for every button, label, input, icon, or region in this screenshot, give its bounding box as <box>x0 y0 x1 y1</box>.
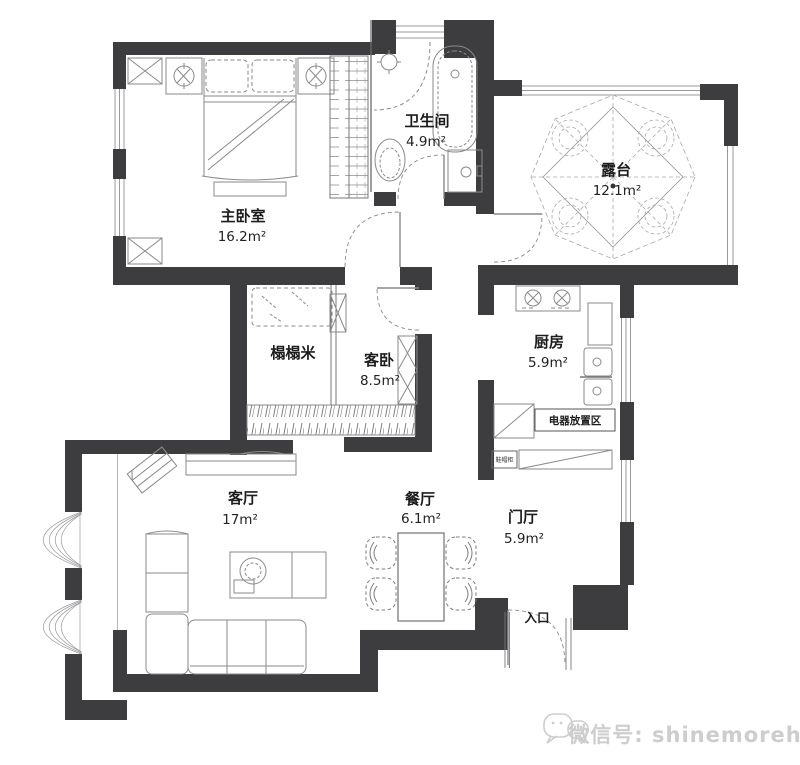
wall-segment <box>475 598 508 650</box>
dining-room-label: 餐厅 <box>405 490 435 508</box>
toilet <box>375 139 405 181</box>
dining-table <box>398 533 444 621</box>
wall-segment <box>724 98 738 146</box>
ceiling-lamp-icon <box>381 54 397 70</box>
watermark-text: 微信号: shinemorehn <box>567 723 800 747</box>
bathtub-inner <box>438 51 472 147</box>
terrace-railing <box>522 86 700 95</box>
patio-chair <box>638 198 674 234</box>
wall-segment <box>65 654 82 702</box>
wall-segment <box>230 285 247 455</box>
burner-cross <box>556 292 568 304</box>
bed-bench <box>214 182 286 196</box>
entrance-hall-label: 门厅 <box>508 508 538 526</box>
wall-segment <box>113 149 126 179</box>
wall-segment <box>65 454 82 512</box>
corner-cabinet-cross <box>128 58 162 84</box>
wall-segment <box>65 700 127 720</box>
wall-segment <box>444 192 492 206</box>
patio-chair <box>552 120 588 156</box>
living-room <box>127 447 326 674</box>
patio-chair <box>559 205 581 227</box>
bed-diagonal <box>208 99 294 170</box>
wall-segment <box>478 285 494 315</box>
wall-segment <box>372 20 396 54</box>
wall-segment <box>700 84 738 100</box>
terrace-label: 露台 <box>601 161 631 179</box>
shoe-cabinet-label: 鞋帽柜 <box>495 456 513 464</box>
wall-segment <box>360 630 378 692</box>
living-room-label: 客厅 <box>227 489 258 507</box>
wall-segment <box>444 20 494 58</box>
wall-segment <box>113 42 375 55</box>
table-plant-inner <box>245 563 261 579</box>
wall-segment <box>378 630 478 650</box>
wall-segment <box>344 437 426 452</box>
coffee-table <box>230 552 292 598</box>
wechat-eye <box>560 722 563 725</box>
window <box>115 89 124 149</box>
bed-blanket-edge <box>202 176 298 180</box>
wall-segment <box>478 265 738 285</box>
living-room-area: 17m² <box>222 512 258 528</box>
sofa-left <box>146 531 188 612</box>
kitchen-sink <box>584 379 612 405</box>
wall-segment <box>494 80 522 96</box>
radiator-strip <box>247 405 415 435</box>
vanity-faucet <box>461 167 471 177</box>
tatami-bedding <box>252 288 332 326</box>
tv-cabinet <box>186 454 296 475</box>
patio-chair <box>638 120 674 156</box>
kitchen-sink <box>584 348 612 376</box>
pillow <box>206 60 248 92</box>
kitchen-label: 厨房 <box>534 333 564 351</box>
sink-drain <box>593 387 601 395</box>
terrace-railing <box>728 146 734 265</box>
sofa-cushion-dividers <box>190 620 304 674</box>
table-tray <box>234 580 254 593</box>
wall-segment <box>113 267 345 285</box>
wall-segment <box>415 334 432 452</box>
patio-chair <box>645 127 667 149</box>
kitchen-area: 5.9m² <box>528 355 568 371</box>
dining-room-area: 6.1m² <box>401 511 441 527</box>
wall-segment <box>620 285 634 318</box>
guest-bedroom-area: 8.5m² <box>360 373 400 389</box>
patio-chair <box>559 127 581 149</box>
corner-cabinet-cross <box>128 238 162 264</box>
appliance-area-label: 电器放置区 <box>549 414 602 427</box>
pillow <box>252 60 294 92</box>
window <box>115 179 124 236</box>
dining-room <box>366 533 476 621</box>
sink-drain <box>593 358 601 366</box>
master-bedroom-label: 主卧室 <box>220 207 265 225</box>
master-bedroom-area: 16.2m² <box>218 229 267 245</box>
hall-cabinet-diagonal <box>519 450 612 469</box>
wall-segment <box>374 192 396 206</box>
entrance-hall-area: 5.9m² <box>504 531 544 547</box>
kitchen <box>492 286 615 469</box>
toilet-bowl <box>380 148 400 178</box>
bay-window-arcs <box>43 512 81 568</box>
appliance-cabinet-diagonal <box>494 404 534 438</box>
wall-segment <box>476 42 494 214</box>
wall-segment <box>400 267 432 285</box>
burner-cross <box>527 292 539 304</box>
floor-plan-canvas: 主卧室 16.2m² 卫生间 4.9m² 露台 12.1m² 榻榻米 客卧 8.… <box>0 0 800 765</box>
guest-bedroom-label: 客卧 <box>363 351 394 369</box>
bathtub-drain <box>451 70 459 78</box>
bathroom-label: 卫生间 <box>404 112 449 130</box>
counter <box>588 303 612 345</box>
tatami-bedding-folds <box>262 292 308 322</box>
patio-chair <box>645 205 667 227</box>
terrace-door-swing <box>494 214 542 262</box>
bed-frame <box>204 58 296 176</box>
wall-segment <box>65 568 82 600</box>
entrance-label: 入口 <box>524 610 549 625</box>
wechat-eye <box>552 722 555 725</box>
patio-chair <box>552 198 588 234</box>
wall-segment <box>573 585 628 630</box>
guest-wardrobe-cross <box>398 336 417 404</box>
bedroom-door-swing <box>345 212 400 267</box>
watermark: 微信号: shinemorehn <box>544 714 800 747</box>
wall-segment <box>113 674 378 692</box>
wall-segment <box>620 402 634 460</box>
bathroom-area: 4.9m² <box>406 134 446 150</box>
window <box>622 318 631 402</box>
terrace-area: 12.1m² <box>593 183 642 199</box>
side-table <box>292 552 326 598</box>
bay-window-arcs <box>43 600 81 654</box>
wall-segment <box>113 42 126 89</box>
wall-segment <box>620 522 634 585</box>
window <box>622 460 631 522</box>
tatami-label: 榻榻米 <box>270 344 316 362</box>
sofa-corner <box>146 614 188 674</box>
guest-room-door-swing <box>377 288 419 330</box>
guest-wardrobe <box>398 336 417 404</box>
window <box>396 26 444 38</box>
